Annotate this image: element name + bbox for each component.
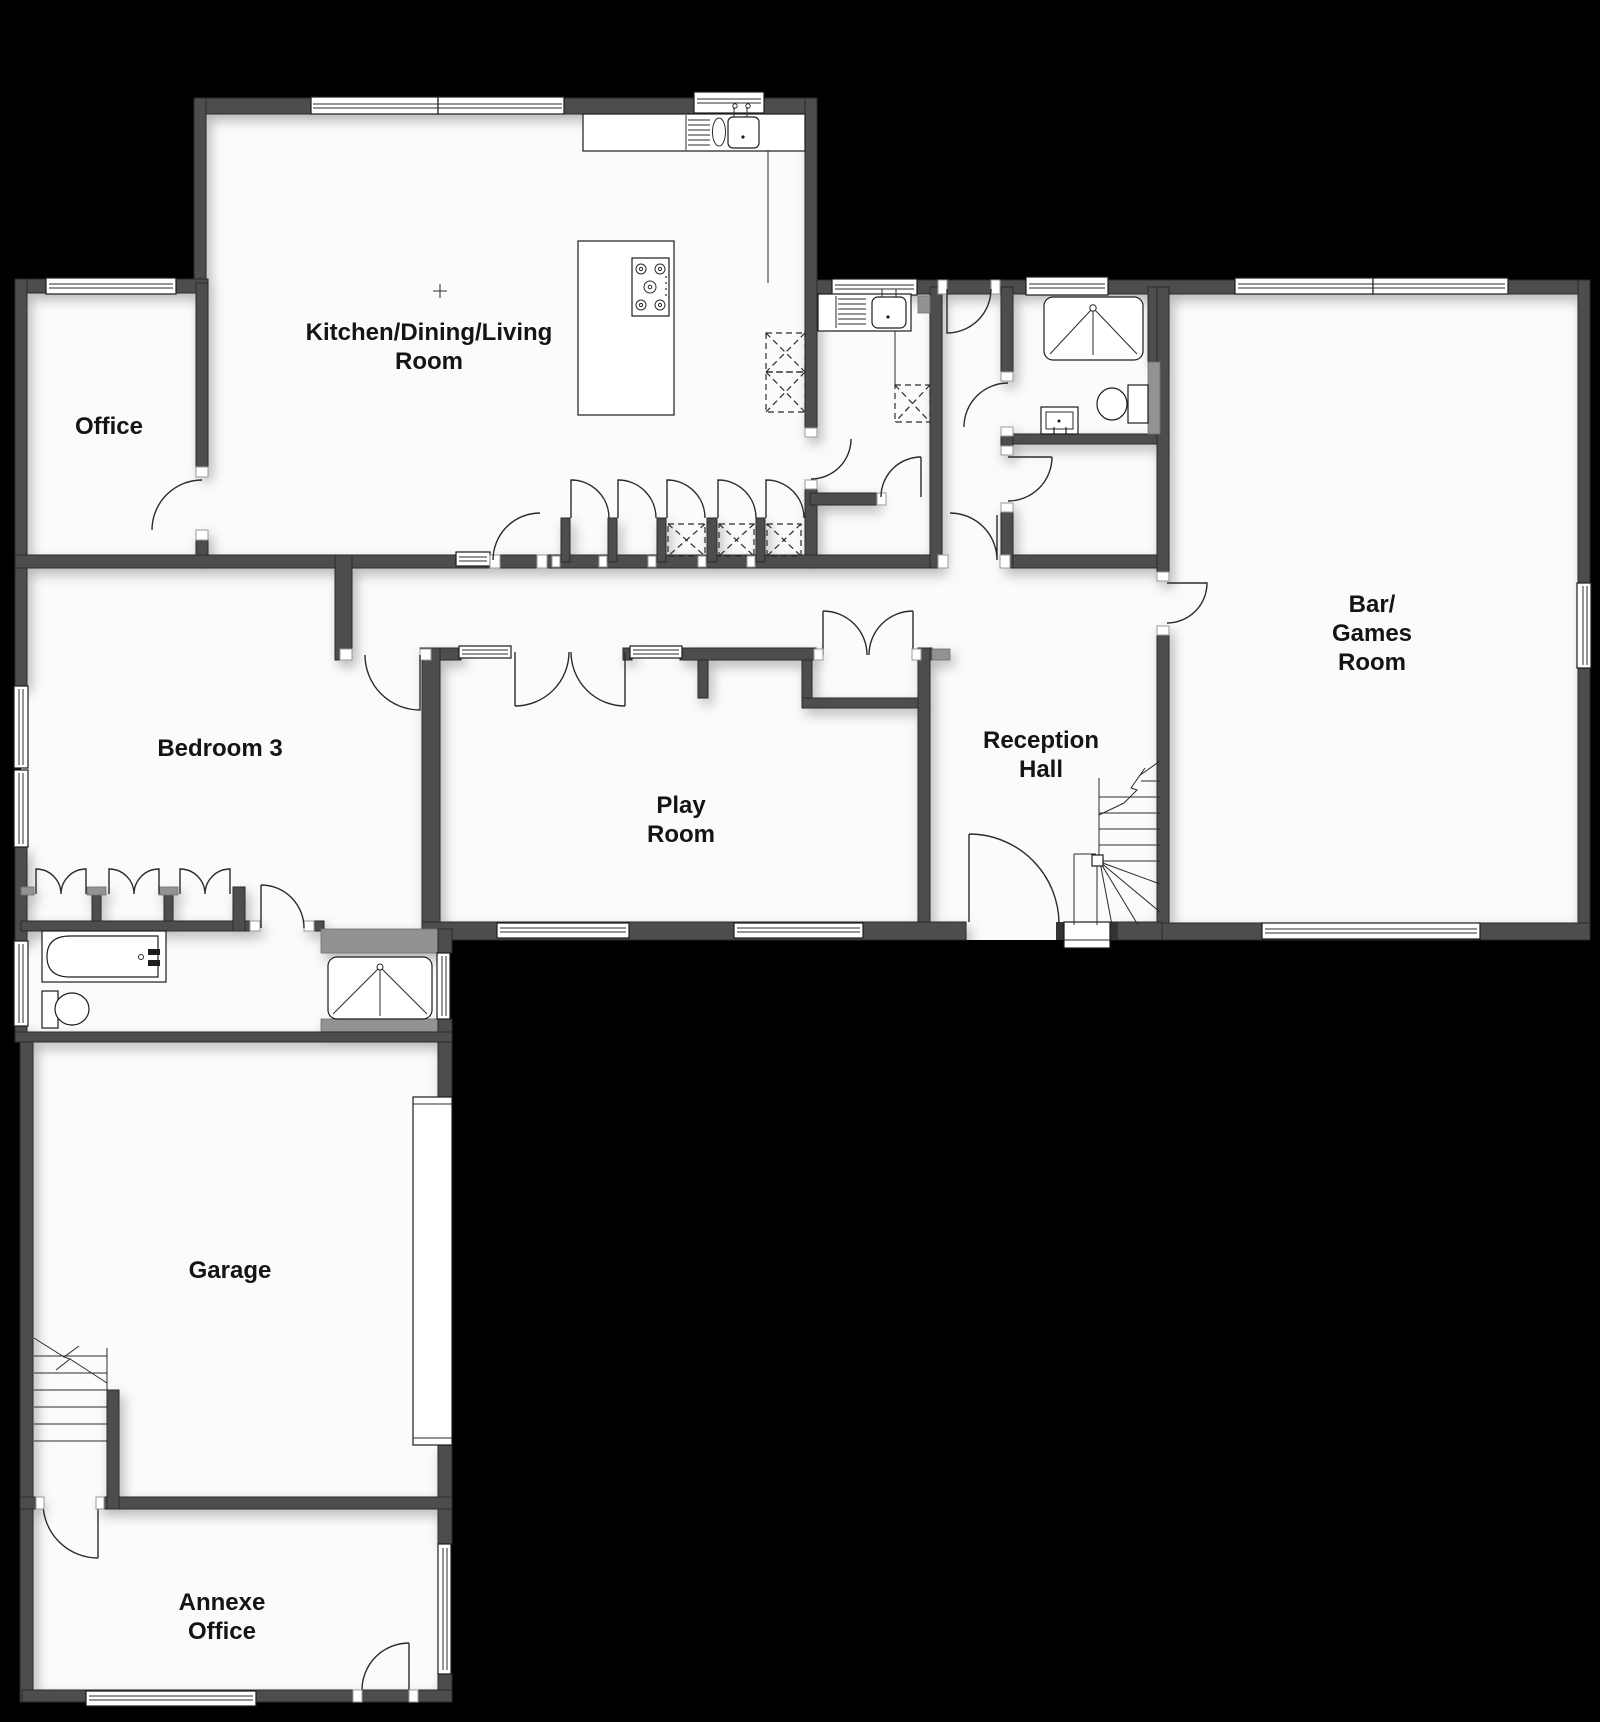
svg-text:Reception: Reception [983,727,1099,754]
svg-text:Annexe: Annexe [179,1589,266,1616]
svg-text:Room: Room [395,348,463,375]
svg-text:Hall: Hall [1019,756,1063,783]
svg-text:Garage: Garage [189,1257,272,1284]
svg-text:Room: Room [1338,649,1406,676]
svg-text:Games: Games [1332,620,1412,647]
svg-text:Office: Office [75,413,143,440]
svg-text:Office: Office [188,1618,256,1645]
svg-text:Bedroom 3: Bedroom 3 [157,735,282,762]
svg-text:Kitchen/Dining/Living: Kitchen/Dining/Living [306,319,553,346]
svg-text:Bar/: Bar/ [1349,591,1396,618]
svg-text:Room: Room [647,821,715,848]
svg-text:Play: Play [656,792,706,819]
